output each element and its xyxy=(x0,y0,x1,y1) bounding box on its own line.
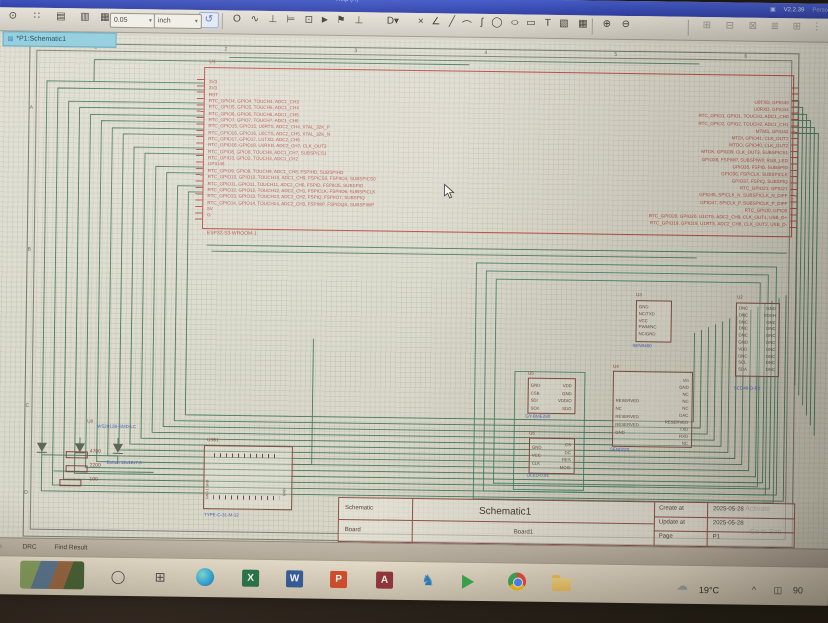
cortana-icon[interactable]: ◯ xyxy=(108,567,128,587)
dropdown-d-icon[interactable]: D▾ xyxy=(384,16,402,27)
u1-ref: U1 xyxy=(209,59,215,65)
wire-icon[interactable]: ∿ xyxy=(246,14,264,25)
tray-caret-icon[interactable]: ^ xyxy=(744,580,764,600)
usb1-ref: USB1 xyxy=(207,437,219,442)
schematic-canvas[interactable]: 123456 ABCD U1 3V33V3RSTRTC_GPIO4, GPIO4… xyxy=(0,34,828,549)
titlebar-app-icon: ▣ xyxy=(770,6,776,13)
col-label-6: 6 xyxy=(744,54,747,60)
tray-screen-icon[interactable]: ◫ xyxy=(768,580,788,600)
u3-pin-label: GND xyxy=(639,304,657,311)
u6-right-pin-label: MOSI xyxy=(529,463,571,471)
activate-watermark-line1: Activate xyxy=(745,506,770,513)
file-icon: ▤ xyxy=(8,35,14,42)
schematic-name[interactable]: Schematic1 xyxy=(479,506,531,518)
resistor-1[interactable] xyxy=(66,451,88,458)
u5-right-pin-label: SDO xyxy=(527,404,571,412)
polygon-icon[interactable]: O xyxy=(228,13,246,24)
u2-right-pins: GNDVDDHDNCDNCDNCDNCDNCDNCDNCDNC xyxy=(735,305,776,374)
media-play-icon[interactable] xyxy=(462,575,474,589)
task-view-icon[interactable]: ⊞ xyxy=(150,567,170,587)
usb-gnd-left-label: GND 1 GND xyxy=(205,453,210,499)
chevron-down-icon: ▾ xyxy=(149,17,152,24)
image-icon[interactable]: ▧ xyxy=(555,18,573,29)
u6-ref: U6 xyxy=(529,431,535,436)
board-label: Board xyxy=(345,527,361,533)
u4-right-pin-label: NC xyxy=(612,439,688,447)
usb-gnd-right-label: GND xyxy=(282,460,287,496)
screen: Help (H) ▣ V2.2.39 Perso ⊙∷▤▥▦↺O∿⊥⊨⊡►⚑⊥D… xyxy=(0,0,828,605)
u3-ref: U3 xyxy=(636,292,642,297)
page-label: Page xyxy=(659,533,673,539)
sheet-settings-icon[interactable]: ▥ xyxy=(76,11,94,22)
u1-right-pins: U0TXD, GPIO43U0RXD, GPIO44RTC_GPIO1, GPI… xyxy=(477,95,789,229)
tab-label: *P1:Schematic1 xyxy=(16,35,66,43)
person-icon[interactable]: ♞ xyxy=(418,571,438,591)
u3-pins: GNDNC/TXDVCCPWM/NCNC/GND xyxy=(638,304,656,338)
create-at-value[interactable]: 2025-05-28 xyxy=(713,506,744,512)
start-widget-thumbnail[interactable] xyxy=(20,561,84,590)
row-label-b: B xyxy=(28,247,31,253)
u8-part-label: WS2812B-SMD-LC xyxy=(97,424,136,430)
u4-ref: U4 xyxy=(613,364,619,369)
u3-part-label: SEN0460 xyxy=(632,343,651,348)
create-at-label: Create at xyxy=(659,505,684,511)
align-bottom-icon[interactable]: ⊞ xyxy=(788,21,806,32)
folder-icon[interactable] xyxy=(552,578,571,591)
power-flag-icon[interactable]: ⊥ xyxy=(350,15,368,26)
distribute-icon[interactable]: ⋮ xyxy=(808,21,826,32)
zoom-icon[interactable]: ⊙ xyxy=(4,10,22,21)
grid-size-value: 0.05 xyxy=(114,17,128,24)
update-at-value[interactable]: 2025-05-28 xyxy=(713,520,744,526)
page-value[interactable]: P1 xyxy=(713,534,720,540)
u8-ref: U8 xyxy=(87,418,93,423)
sheet-icon[interactable]: ▤ xyxy=(52,11,70,22)
unit-select[interactable]: inch ▾ xyxy=(154,13,202,29)
resistor-value: 2200 xyxy=(89,462,100,476)
excel-icon[interactable]: X xyxy=(242,570,259,587)
u4-right-pins: VinGNDNCNCNCDACRESERVEDTXDRXDNC xyxy=(612,376,689,447)
col-label-5: 5 xyxy=(614,52,617,58)
powerpoint-icon[interactable]: P xyxy=(330,571,347,588)
tab-schematic1[interactable]: ▤ *P1:Schematic1 xyxy=(2,31,116,48)
find-replace-icon[interactable]: ⊖ xyxy=(617,19,635,30)
u5-ref: U5 xyxy=(528,371,534,376)
align-top-icon[interactable]: ≣ xyxy=(766,21,784,32)
schematic-label: Schematic xyxy=(345,505,373,511)
button-part-label: Button 12x12x7.3 xyxy=(107,460,142,465)
resistor-values: 47002200100 xyxy=(89,448,101,490)
account-label[interactable]: Perso xyxy=(812,7,828,13)
status-item-partial[interactable]: on xyxy=(0,543,2,550)
activate-watermark-line2: Go to Sett xyxy=(750,529,782,536)
find-icon[interactable]: ⊕ xyxy=(598,19,616,30)
align-left-icon[interactable]: ⊞ xyxy=(698,20,716,31)
access-icon[interactable]: A xyxy=(376,571,393,588)
resistor-value: 100 xyxy=(89,476,100,490)
u3-pin-label: NC/TXD xyxy=(639,311,657,318)
mouse-cursor xyxy=(443,183,457,199)
align-right-icon[interactable]: ⊠ xyxy=(744,21,762,32)
u2-right-pin-label: DNC xyxy=(735,367,775,374)
status-item-drc[interactable]: DRC xyxy=(22,544,36,551)
pin-icon[interactable]: ⊥ xyxy=(264,14,282,25)
rect-icon[interactable]: ▭ xyxy=(522,17,540,28)
usb1-part-label: TYPE-C-31-M-12 xyxy=(204,512,239,517)
resistor-3[interactable] xyxy=(59,479,81,486)
word-icon[interactable]: W xyxy=(286,570,303,587)
netflag-icon[interactable]: ⚑ xyxy=(332,15,350,26)
row-label-d: D xyxy=(24,490,28,496)
resistor-2[interactable] xyxy=(66,465,88,472)
titlebar-help-text: Help (H) xyxy=(336,0,358,3)
weather-cloud-icon[interactable]: ☁ xyxy=(672,576,692,596)
update-at-label: Update at xyxy=(659,519,685,525)
resistor-value: 4700 xyxy=(90,448,101,462)
u6-right-pins: CSDCRESMOSI xyxy=(529,441,571,472)
toolbar-divider[interactable] xyxy=(688,20,689,36)
u2-part-label: SCD40-D-R2 xyxy=(734,385,761,390)
u5-right-pins: VDDGNDVDDIOSDO xyxy=(527,382,571,413)
row-label-a: A xyxy=(30,105,33,111)
toolbar-divider[interactable] xyxy=(222,13,223,29)
bus-icon[interactable]: ⊨ xyxy=(282,14,300,25)
u1-left-pins: 3V33V3RSTRTC_GPIO4, GPIO4, TOUCH4, ADC1_… xyxy=(207,79,509,223)
temperature-label[interactable]: 19°C xyxy=(694,580,724,600)
chevron-down-icon: ▾ xyxy=(195,18,198,25)
chrome-icon[interactable] xyxy=(508,572,526,590)
led-3-icon[interactable] xyxy=(113,444,123,453)
app-version: V2.2.39 xyxy=(784,7,805,13)
unit-value: inch xyxy=(158,17,171,24)
u5-part-label: GY-BME280 xyxy=(525,414,550,419)
edge-icon[interactable] xyxy=(196,568,214,586)
col-label-3: 3 xyxy=(354,48,357,54)
board-name[interactable]: Board1 xyxy=(514,529,533,535)
u2-ref: U2 xyxy=(737,295,743,300)
u1-part-label: ESP32-S3-WROOM-1 xyxy=(207,230,257,237)
tray-battery-label[interactable]: 90 xyxy=(788,580,808,600)
u6-part-label: OLED-0.91 xyxy=(527,473,550,478)
align-center-icon[interactable]: ⊟ xyxy=(721,20,739,31)
row-label-c: C xyxy=(25,403,29,409)
status-item-find-result[interactable]: Find Result xyxy=(54,544,87,551)
table-icon[interactable]: ▦ xyxy=(574,18,592,29)
selection-dots-icon[interactable]: ∷ xyxy=(28,11,46,22)
col-label-2: 2 xyxy=(224,46,227,52)
grid-size-select[interactable]: 0.05 ▾ xyxy=(110,13,156,29)
u3-pin-label: NC/GND xyxy=(638,331,656,338)
u4-part-label: SEN0220 xyxy=(610,447,629,452)
led-1-icon[interactable] xyxy=(37,443,47,452)
toolbar-divider[interactable] xyxy=(592,18,593,34)
col-label-4: 4 xyxy=(484,50,487,56)
title-block: Schematic Schematic1 Board Board1 Create… xyxy=(338,497,796,548)
